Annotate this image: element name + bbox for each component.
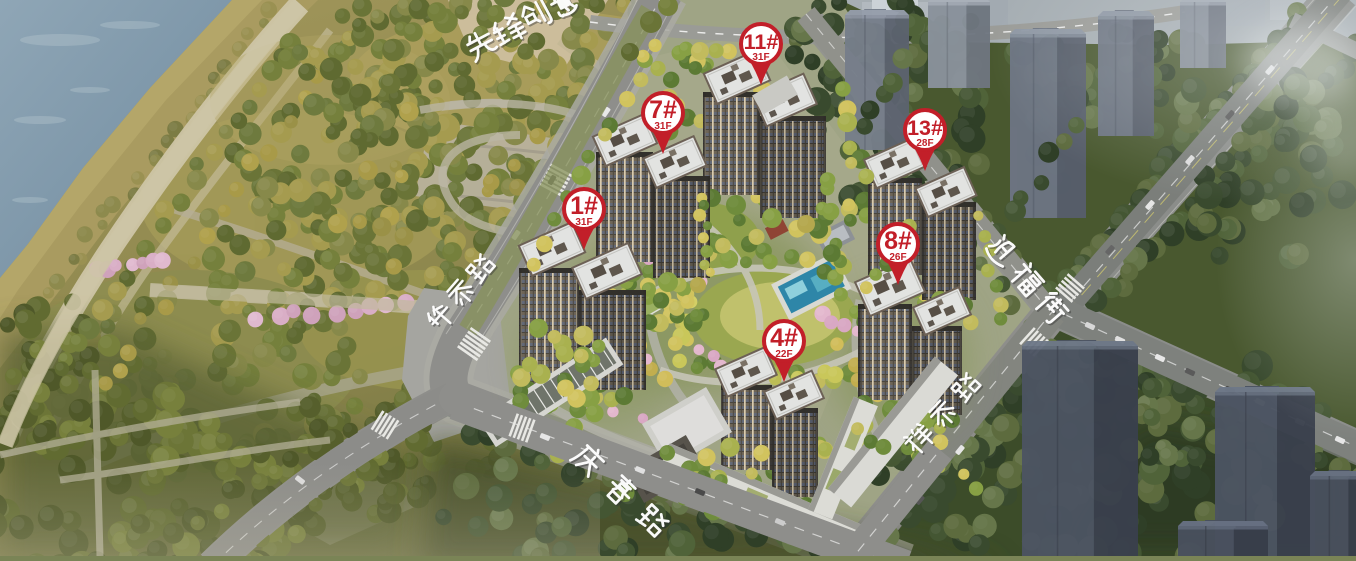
svg-text:31F: 31F: [575, 217, 592, 228]
svg-text:8#: 8#: [884, 227, 912, 255]
svg-text:22F: 22F: [775, 349, 792, 360]
svg-text:7#: 7#: [649, 96, 677, 124]
svg-text:1#: 1#: [570, 192, 598, 220]
svg-text:11#: 11#: [744, 30, 779, 54]
svg-text:26F: 26F: [889, 252, 906, 263]
svg-text:31F: 31F: [752, 52, 769, 63]
svg-text:28F: 28F: [916, 138, 933, 149]
svg-text:4#: 4#: [770, 324, 798, 352]
svg-text:13#: 13#: [907, 116, 943, 140]
svg-text:31F: 31F: [654, 121, 671, 132]
